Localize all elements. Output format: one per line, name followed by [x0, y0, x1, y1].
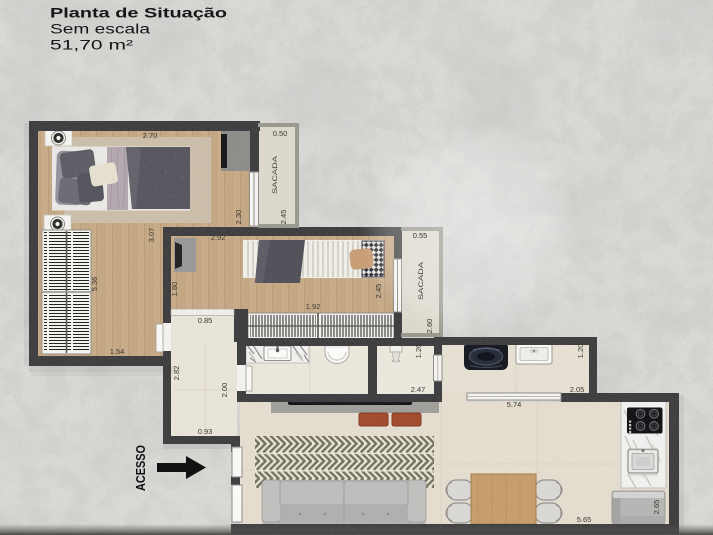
- svg-text:2.70: 2.70: [143, 131, 158, 140]
- svg-text:51,70 m²: 51,70 m²: [50, 38, 134, 53]
- svg-text:0.50: 0.50: [273, 129, 288, 138]
- svg-text:2.00: 2.00: [220, 383, 229, 398]
- svg-text:SACADA: SACADA: [272, 155, 279, 194]
- svg-text:5.74: 5.74: [507, 400, 522, 409]
- svg-text:2.92: 2.92: [211, 233, 226, 242]
- svg-text:2.05: 2.05: [570, 385, 585, 394]
- svg-text:0.55: 0.55: [413, 231, 428, 240]
- svg-text:0.93: 0.93: [198, 427, 213, 436]
- svg-text:5.36: 5.36: [90, 277, 99, 292]
- svg-text:ACESSO: ACESSO: [133, 445, 148, 491]
- svg-text:3.07: 3.07: [147, 228, 156, 243]
- svg-text:5.65: 5.65: [577, 515, 592, 524]
- svg-text:2.45: 2.45: [279, 210, 288, 225]
- svg-text:1.92: 1.92: [306, 302, 321, 311]
- svg-text:1.80: 1.80: [170, 282, 179, 297]
- svg-text:2.45: 2.45: [374, 284, 383, 299]
- svg-text:Sem escala: Sem escala: [50, 22, 151, 37]
- svg-text:2.65: 2.65: [652, 500, 661, 515]
- svg-text:1.20: 1.20: [414, 344, 423, 359]
- svg-text:1.20: 1.20: [576, 344, 585, 359]
- svg-text:2.30: 2.30: [234, 210, 243, 225]
- svg-text:2.60: 2.60: [425, 319, 434, 334]
- svg-text:0.85: 0.85: [198, 316, 213, 325]
- svg-text:SACADA: SACADA: [418, 261, 425, 300]
- svg-text:Planta de Situação: Planta de Situação: [50, 5, 227, 21]
- svg-text:2.82: 2.82: [172, 366, 181, 381]
- svg-text:1.54: 1.54: [110, 347, 125, 356]
- svg-text:2.47: 2.47: [411, 385, 426, 394]
